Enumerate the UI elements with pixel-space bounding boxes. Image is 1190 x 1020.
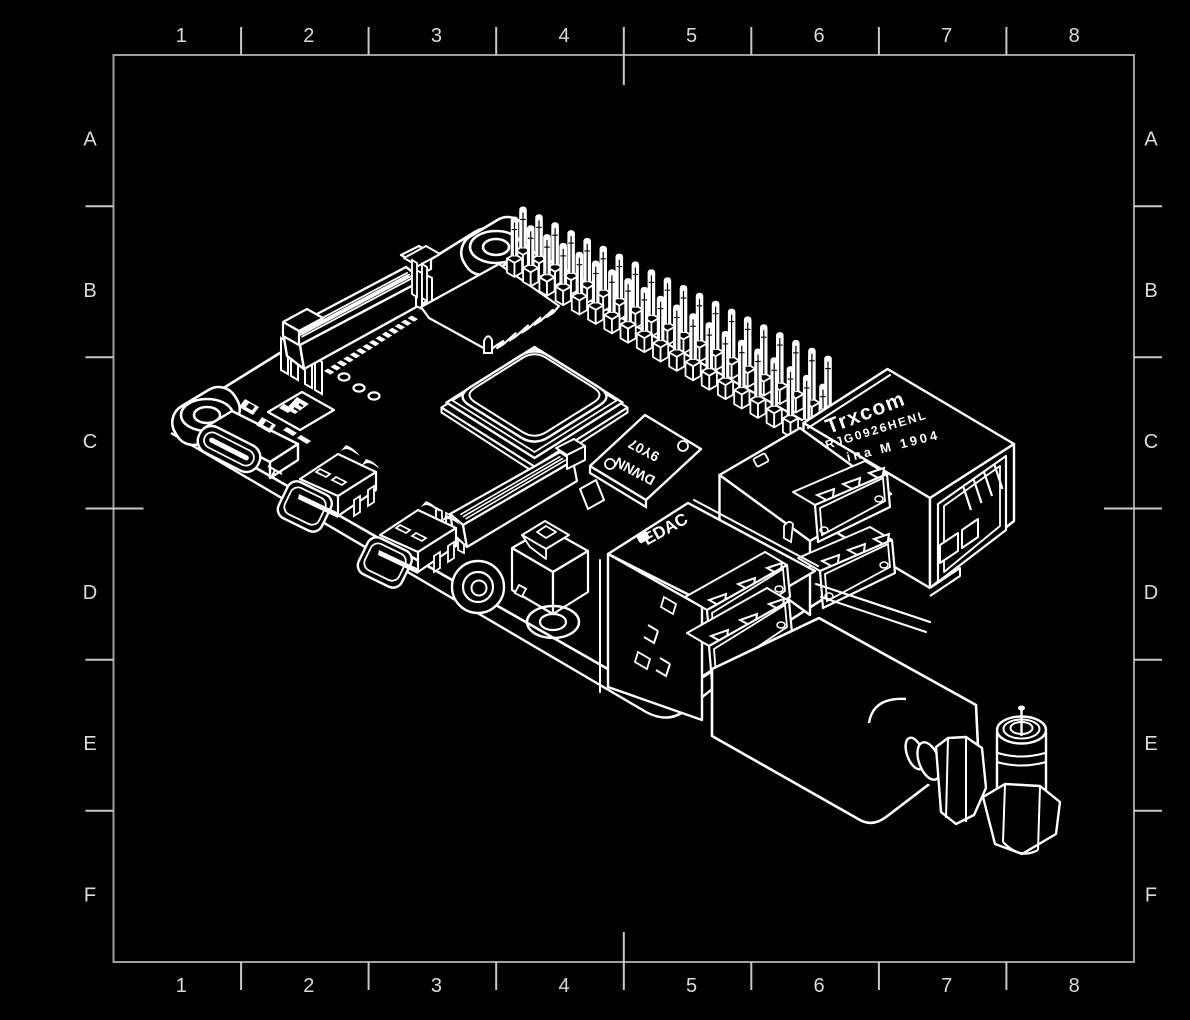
svg-text:D: D bbox=[83, 582, 97, 604]
svg-text:4: 4 bbox=[558, 975, 569, 997]
svg-text:5: 5 bbox=[686, 25, 697, 47]
svg-text:C: C bbox=[1144, 431, 1158, 453]
svg-text:6: 6 bbox=[814, 975, 825, 997]
svg-text:1: 1 bbox=[176, 25, 187, 47]
svg-text:8: 8 bbox=[1069, 25, 1080, 47]
svg-text:1: 1 bbox=[176, 975, 187, 997]
svg-text:2: 2 bbox=[303, 975, 314, 997]
svg-text:6: 6 bbox=[814, 25, 825, 47]
svg-text:4: 4 bbox=[558, 25, 569, 47]
svg-text:8: 8 bbox=[1069, 975, 1080, 997]
svg-text:D: D bbox=[1144, 582, 1158, 604]
svg-text:E: E bbox=[83, 733, 96, 755]
svg-text:A: A bbox=[83, 129, 97, 151]
svg-text:E: E bbox=[1144, 733, 1157, 755]
svg-text:3: 3 bbox=[431, 25, 442, 47]
svg-text:2: 2 bbox=[303, 25, 314, 47]
svg-text:F: F bbox=[1145, 884, 1157, 906]
svg-text:A: A bbox=[1144, 129, 1158, 151]
svg-text:7: 7 bbox=[941, 25, 952, 47]
svg-text:C: C bbox=[83, 431, 97, 453]
svg-text:3: 3 bbox=[431, 975, 442, 997]
svg-text:7: 7 bbox=[941, 975, 952, 997]
svg-text:5: 5 bbox=[686, 975, 697, 997]
svg-text:F: F bbox=[84, 884, 96, 906]
svg-text:B: B bbox=[83, 280, 96, 302]
svg-text:B: B bbox=[1144, 280, 1157, 302]
